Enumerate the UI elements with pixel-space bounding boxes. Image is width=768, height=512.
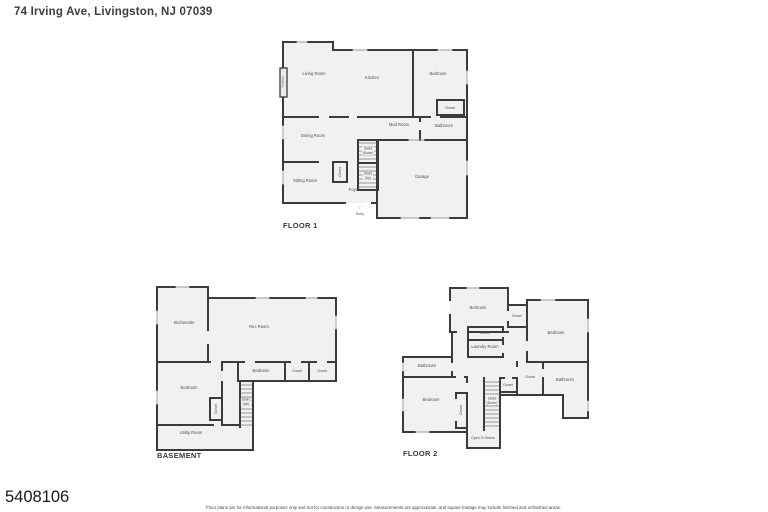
room-label-closet-top: Closet (512, 314, 522, 318)
room-label-utility-room: Utility Room (180, 430, 202, 435)
room-label-garage: Garage (415, 174, 429, 179)
room-label-dining-room: Dining Room (301, 133, 325, 138)
room-label-bedroom-closet-f1: Closet (445, 106, 455, 110)
room-label-closet-a: Closet (292, 369, 302, 373)
room-label-sitting-room: Sitting Room (293, 178, 317, 183)
floorplan-page: 74 Irving Ave, Livingston, NJ 07039 (0, 0, 768, 512)
room-label-living-room: Living Room (302, 71, 325, 76)
room-label-bedroom-closet-f2: Closet (459, 405, 463, 415)
basement-title: BASEMENT (157, 451, 202, 460)
room-label-bedroom-left: Bedroom (181, 385, 198, 390)
room-label-laundry-room: Laundry Room (471, 344, 498, 349)
disclaimer-wrap: Floor plans are for informational purpos… (0, 499, 768, 512)
room-label-hall-closet: Closet (338, 167, 342, 177)
room-label-stairs-down-f2: Stairs (Down) (486, 397, 499, 405)
room-label-stairs-down-f1: Stairs (Down) (362, 147, 375, 155)
disclaimer-text: Floor plans are for informational purpos… (207, 505, 562, 510)
room-label-kitchenette: Kitchenette (174, 320, 195, 325)
room-label-entry: Entry (356, 212, 364, 216)
room-label-bedroom-top-right: Bedroom (548, 330, 565, 335)
room-label-fireplace: Fireplace (281, 76, 284, 87)
floor1-title: FLOOR 1 (283, 221, 318, 230)
floor2-title: FLOOR 2 (403, 449, 438, 458)
basement-plan (157, 287, 336, 450)
room-label-mud-room: Mud Room (389, 122, 409, 127)
room-label-closet-right: Closet (525, 375, 535, 379)
room-label-bathroom-left: Bathroom (418, 363, 436, 368)
room-label-closet-center: Closet (503, 383, 513, 387)
floor1-plan (280, 42, 467, 218)
entry-arrow-icon: ↑ (359, 205, 361, 211)
room-label-closet-b: Closet (317, 369, 327, 373)
room-label-bedroom-bottom-left: Bedroom (423, 397, 440, 402)
room-label-bathroom-f1: Bathroom (435, 123, 453, 128)
room-label-bedroom-top-left: Bedroom (470, 305, 487, 310)
room-label-stairs-up-bsmt: Stairs (Up) (241, 398, 251, 406)
floorplan-canvas (0, 0, 768, 512)
room-label-kitchen: Kitchen (365, 75, 379, 80)
room-label-bedroom-center: Bedroom (253, 368, 270, 373)
room-label-foyer: Foyer (349, 187, 360, 192)
room-label-open-to-below: Open To Below (471, 436, 495, 440)
room-label-stairs-up-f1: Stairs (Up) (363, 172, 373, 180)
room-label-bathroom-right: Bathroom (556, 377, 574, 382)
room-label-bedroom-closet-bsmt: Closet (214, 404, 218, 414)
room-label-rec-room: Rec Room (249, 324, 269, 329)
room-label-closet-middle: Closet (480, 331, 490, 335)
room-label-bedroom-f1: Bedroom (430, 71, 447, 76)
